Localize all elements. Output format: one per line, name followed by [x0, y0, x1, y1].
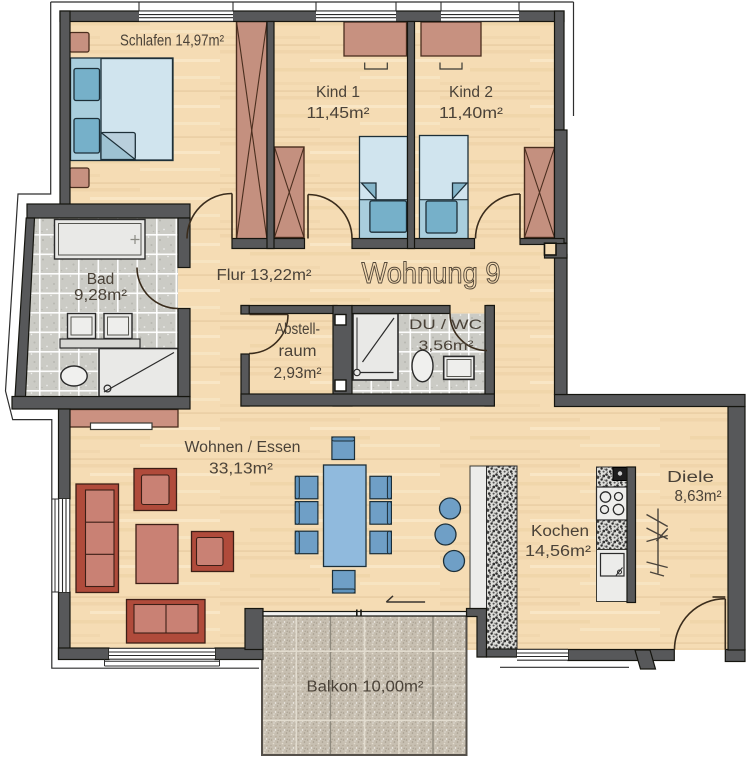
- svg-text:8,63m²: 8,63m²: [675, 488, 722, 505]
- svg-text:Kind 2: Kind 2: [449, 84, 493, 101]
- svg-text:raum: raum: [279, 343, 317, 360]
- svg-text:9,28m²: 9,28m²: [74, 287, 127, 304]
- svg-text:Flur 13,22m²: Flur 13,22m²: [217, 267, 312, 284]
- svg-text:11,40m²: 11,40m²: [439, 105, 503, 122]
- svg-text:Wohnen / Essen: Wohnen / Essen: [185, 439, 301, 456]
- svg-text:Kochen: Kochen: [531, 523, 589, 540]
- svg-text:14,56m²: 14,56m²: [525, 543, 591, 560]
- svg-text:DU / WC: DU / WC: [409, 316, 482, 332]
- svg-text:2,93m²: 2,93m²: [274, 365, 322, 382]
- svg-text:Kind 1: Kind 1: [316, 84, 360, 101]
- svg-text:Balkon 10,00m²: Balkon 10,00m²: [307, 679, 424, 696]
- svg-text:Bad: Bad: [87, 271, 115, 288]
- svg-text:Wohnung 9: Wohnung 9: [362, 257, 501, 290]
- svg-text:Abstell-: Abstell-: [275, 321, 320, 338]
- svg-text:33,13m²: 33,13m²: [209, 461, 273, 478]
- svg-text:3,56m²: 3,56m²: [419, 337, 474, 353]
- svg-text:Diele: Diele: [667, 469, 714, 486]
- svg-text:11,45m²: 11,45m²: [307, 105, 370, 122]
- svg-text:Schlafen 14,97m²: Schlafen 14,97m²: [120, 33, 224, 50]
